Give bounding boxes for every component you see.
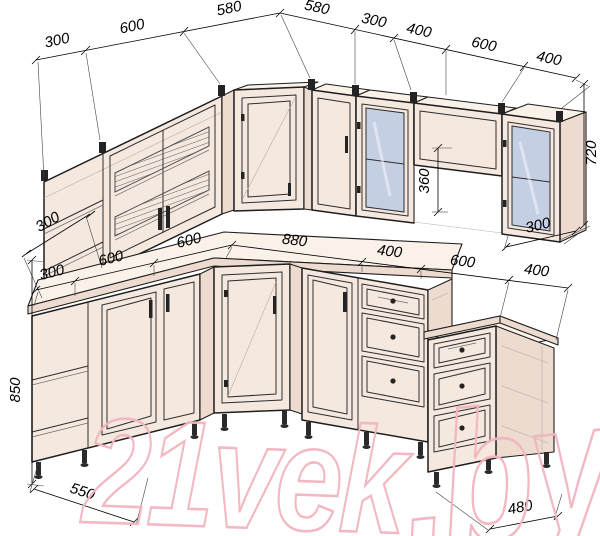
door-handle <box>166 294 170 312</box>
drawer-knob <box>390 298 395 303</box>
kitchen-technical-drawing: 300 600 580 580 300 400 600 400 720 360 … <box>0 0 600 536</box>
door-handle <box>158 208 162 230</box>
door-handle <box>166 206 170 228</box>
dim-height-720: 720 <box>583 140 600 166</box>
door-handle <box>343 292 347 312</box>
dim-upper-right-400b: 400 <box>535 48 564 70</box>
watermark-text-2: .by <box>391 360 600 536</box>
door-handle <box>273 296 277 314</box>
dim-upper-left-300: 300 <box>43 30 72 52</box>
dim-upper-right-400: 400 <box>405 20 434 42</box>
dim-upper-right-600: 600 <box>470 34 499 56</box>
door-handle <box>149 300 153 318</box>
dim-upper-left-600: 600 <box>118 16 147 38</box>
drawer-knob <box>459 347 464 352</box>
watermark-text-1: 21vek <box>78 386 415 536</box>
dim-upper-right-580: 580 <box>303 0 332 19</box>
dim-upper-right-300: 300 <box>360 10 389 32</box>
drawer-knob <box>390 334 395 339</box>
dim-lower-right-600: 600 <box>449 252 477 272</box>
hinge <box>503 140 507 147</box>
door-handle <box>288 183 291 196</box>
dim-height-850: 850 <box>7 377 24 403</box>
hinge <box>224 380 228 387</box>
dim-height-360: 360 <box>416 168 433 194</box>
hinge <box>241 114 245 121</box>
door-handle <box>345 136 348 153</box>
dim-lower-right-880: 880 <box>281 231 309 251</box>
upper-corner-cabinet <box>222 82 318 214</box>
hinge <box>503 200 507 207</box>
hinge <box>357 186 361 193</box>
hinge <box>224 290 228 297</box>
dim-upper-left-580: 580 <box>215 0 244 20</box>
hinge <box>357 122 361 129</box>
dim-lower-right-400: 400 <box>376 242 404 262</box>
dim-lower-right-400b: 400 <box>523 261 551 281</box>
hinge <box>241 172 245 179</box>
dimension-ticks <box>32 9 580 82</box>
